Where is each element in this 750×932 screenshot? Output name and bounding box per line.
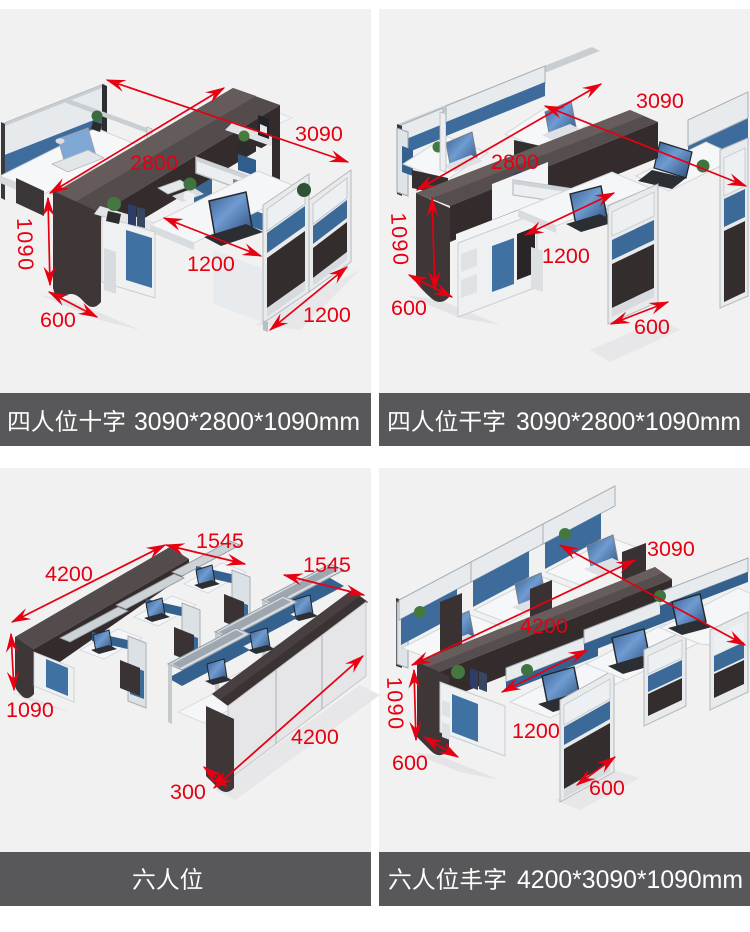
svg-text:3090*2800*1090mm: 3090*2800*1090mm [134,408,360,436]
svg-text:300: 300 [170,780,206,804]
svg-text:4200: 4200 [45,562,93,586]
svg-text:1200: 1200 [542,244,590,268]
svg-text:1200: 1200 [187,252,235,276]
svg-text:4200*3090*1090mm: 4200*3090*1090mm [517,866,743,894]
svg-text:1545: 1545 [196,529,244,553]
svg-text:600: 600 [40,308,76,332]
svg-text:600: 600 [634,315,670,339]
svg-text:1090: 1090 [6,698,54,722]
svg-text:2800: 2800 [491,150,539,174]
svg-text:600: 600 [392,751,428,775]
svg-text:1200: 1200 [512,719,560,743]
svg-text:1545: 1545 [303,553,351,577]
svg-text:1090: 1090 [382,676,408,731]
svg-text:4200: 4200 [520,614,568,638]
svg-text:3090*2800*1090mm: 3090*2800*1090mm [516,408,741,436]
svg-text:600: 600 [589,776,625,800]
svg-text:1090: 1090 [386,212,413,267]
svg-text:4200: 4200 [291,725,339,749]
svg-text:2800: 2800 [130,151,178,175]
svg-text:1200: 1200 [303,303,351,327]
svg-text:3090: 3090 [636,89,684,113]
svg-text:1090: 1090 [12,217,38,272]
svg-text:3090: 3090 [647,537,695,561]
svg-text:3090: 3090 [295,122,343,146]
svg-text:600: 600 [391,296,427,320]
